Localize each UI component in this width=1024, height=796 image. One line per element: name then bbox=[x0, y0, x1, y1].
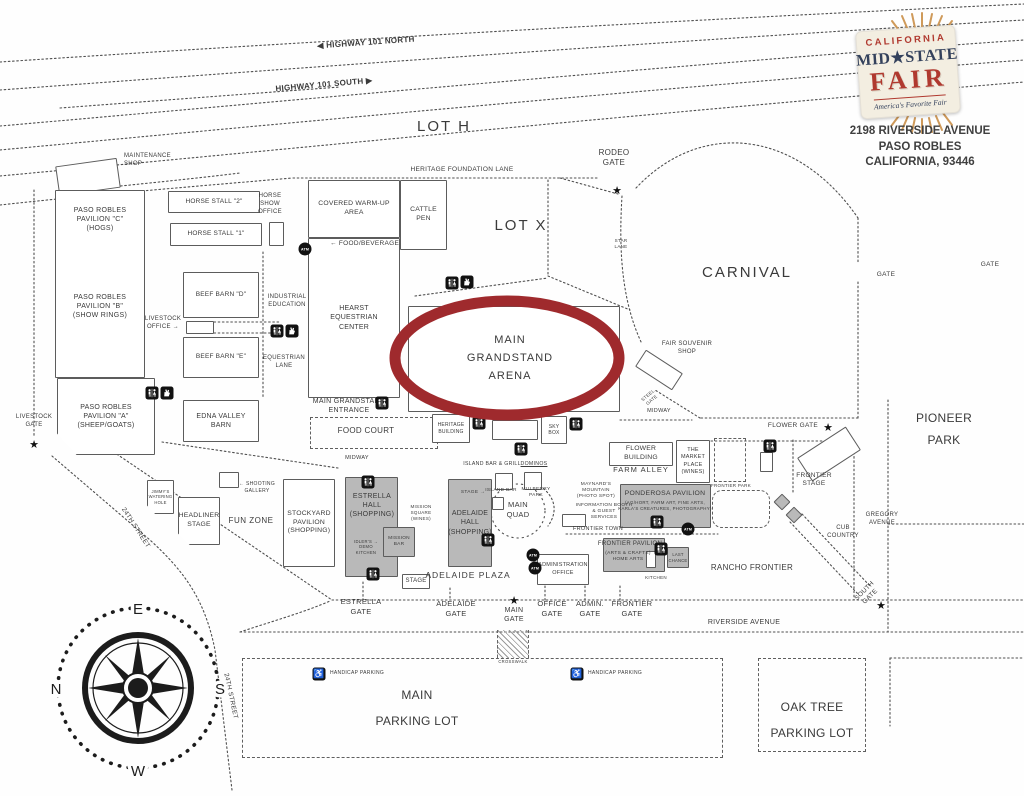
main-parking-lot-label: MAIN PARKING LOT bbox=[375, 682, 458, 735]
atm-ponderosa: ATM bbox=[682, 523, 695, 536]
headliner-stage: HEADLINER STAGE bbox=[178, 497, 220, 545]
estrella-stage-label: STAGE bbox=[406, 578, 427, 586]
midway-west-label: MIDWAY bbox=[345, 455, 369, 462]
carnival: CARNIVAL bbox=[702, 263, 792, 283]
frontier-pavilion-label: FRONTIER PAVILION bbox=[598, 541, 662, 549]
restroom-frontier-pavilion-icon bbox=[655, 543, 668, 556]
fairgrounds-map: PASO ROBLES PAVILION "A" (SHEEP/GOATS)HO… bbox=[0, 0, 1024, 796]
maynards-mountain-label: MAYNARD'S MOUNTAIN (PHOTO SPOT) bbox=[577, 482, 615, 501]
flower-building: FLOWER BUILDING bbox=[609, 442, 673, 466]
adelaide-plaza-label: ADELAIDE PLAZA bbox=[425, 570, 510, 581]
admin-gate-label: ADMIN. GATE bbox=[576, 599, 604, 619]
headliner-stage-label: HEADLINER STAGE bbox=[179, 512, 220, 530]
beef-barn-d: BEEF BARN "D" bbox=[183, 272, 259, 318]
riverside-curve bbox=[240, 601, 330, 632]
market-place: THE MARKET PLACE (WINES) bbox=[676, 440, 710, 483]
hearst-equestrian-center-label: HEARST EQUESTRIAN CENTER bbox=[330, 304, 378, 331]
frontier-gate-label: FRONTIER GATE bbox=[612, 599, 653, 619]
maintenance-shop-label: MAINTENANCE SHOP bbox=[124, 153, 171, 169]
compass-west-label: W bbox=[131, 763, 146, 780]
carnival-top bbox=[636, 143, 858, 218]
office-gate-label: OFFICE GATE bbox=[537, 599, 566, 619]
cattle-pen: CATTLE PEN bbox=[400, 180, 447, 250]
horse-stall-2: HORSE STALL "2" bbox=[168, 191, 260, 213]
mission-bar-label: MISSION BAR bbox=[388, 536, 410, 548]
restroom-frontier-park-icon bbox=[764, 440, 777, 453]
mulberry-park-label: MULBERRY PARK bbox=[522, 487, 551, 499]
main-grandstand-arena-label: MAIN GRANDSTAND ARENA bbox=[467, 331, 553, 385]
gate-east-label: GATE bbox=[981, 261, 999, 269]
quad-stage bbox=[492, 497, 504, 510]
mission-bar: MISSION BAR bbox=[383, 527, 415, 557]
address-line-3: CALIFORNIA, 93446 bbox=[830, 155, 1010, 171]
restroom-adelaide-icon bbox=[482, 534, 495, 547]
carnival-left bbox=[621, 196, 642, 344]
frontier-diamond-1 bbox=[774, 494, 791, 511]
concession-lot-x-icon bbox=[461, 276, 474, 289]
address-line-1: 2198 RIVERSIDE AVENUE bbox=[830, 124, 1010, 140]
rodeo-gate-star: ★ bbox=[612, 181, 622, 199]
concession-pavilion-a-icon bbox=[161, 387, 174, 400]
kitchen-label: KITCHEN bbox=[645, 575, 667, 581]
fair-address: 2198 RIVERSIDE AVENUE PASO ROBLES CALIFO… bbox=[830, 124, 1010, 171]
highway-101-north: ◀ HIGHWAY 101 NORTH bbox=[317, 35, 415, 52]
horse-stall-1-label: HORSE STALL "1" bbox=[187, 230, 244, 238]
restroom-grandstand-entrance-icon bbox=[376, 397, 389, 410]
frontier-town-label: FRONTIER TOWN bbox=[573, 526, 623, 533]
riverside-avenue-label: RIVERSIDE AVENUE bbox=[708, 618, 780, 627]
logo-fair: FAIR bbox=[869, 62, 949, 97]
horse-stall-2-label: HORSE STALL "2" bbox=[185, 198, 242, 206]
south-gate-star: ★ bbox=[876, 596, 886, 614]
frontier-park-area-1 bbox=[714, 438, 746, 482]
administration-office: ADMINISTRATION OFFICE bbox=[537, 554, 589, 585]
island-bar-grill-label: ISLAND BAR & GRILL bbox=[463, 461, 521, 468]
concession-industrial-ed-icon bbox=[286, 325, 299, 338]
edna-valley-barn: EDNA VALLEY BARN bbox=[183, 400, 259, 442]
atm-admin-1-icon: ATM bbox=[527, 549, 540, 562]
pavilion-b-label: PASO ROBLES PAVILION "B" (SHOW RINGS) bbox=[73, 293, 127, 320]
atm-admin-2: ATM bbox=[529, 562, 542, 575]
cub-country-label: CUB COUNTRY bbox=[827, 525, 859, 541]
flower-building-area-label: FARM ALLEY bbox=[613, 465, 669, 475]
industrial-education-label: INDUSTRIAL EDUCATION bbox=[268, 294, 307, 310]
atm-admin-2-icon: ATM bbox=[529, 562, 542, 575]
gate-carnival-label: GATE bbox=[877, 271, 895, 279]
idlers-demo-kitchen-label: IDLER'S → DEMO KITCHEN bbox=[354, 539, 378, 555]
fair-souvenir-shop-label: FAIR SOUVENIR SHOP bbox=[662, 341, 712, 357]
restroom-sky-box-icon bbox=[570, 418, 583, 431]
food-row-building bbox=[492, 420, 538, 440]
equestrian-lane-label: EQUESTRIAN LANE bbox=[263, 355, 305, 371]
hearst-equestrian-center: HEARST EQUESTRIAN CENTER bbox=[308, 238, 400, 398]
lot-h: LOT H bbox=[417, 117, 471, 137]
handicap-parking-label-1: HANDICAP PARKING bbox=[330, 670, 384, 677]
last-chance-label: LAST CHANCE bbox=[669, 552, 688, 563]
livestock-gate-label: LIVESTOCK GATE bbox=[16, 414, 52, 430]
stockyard-pavilion-label: STOCKYARD PAVILION (SHOPPING) bbox=[287, 510, 330, 536]
jimmys-watering-hole: JIMMY'S WATERING HOLE bbox=[147, 480, 174, 514]
horse-show-office bbox=[269, 222, 284, 246]
lot-x-diag bbox=[548, 276, 630, 310]
food-beverage-label: ← FOOD/BEVERAGE bbox=[330, 240, 399, 248]
restroom-pavilion-a-icon bbox=[146, 387, 159, 400]
flower-building-label: FLOWER BUILDING bbox=[610, 445, 672, 463]
restroom-industrial-ed-icon bbox=[271, 325, 284, 338]
rodeo-gate-label: RODEO GATE bbox=[599, 148, 630, 169]
mission-square-label: MISSION SQUARE (WINES) bbox=[410, 504, 431, 522]
market-place-label: THE MARKET PLACE (WINES) bbox=[681, 447, 705, 476]
paso-robles-pavilion-a-label: PASO ROBLES PAVILION "A" (SHEEP/GOATS) bbox=[78, 403, 135, 430]
main-gate-star-icon: ★ bbox=[509, 595, 519, 607]
livestock-gate-star-icon: ★ bbox=[29, 439, 39, 451]
compass-east-label: E bbox=[133, 601, 143, 618]
compass-rose-icon: E N S W bbox=[48, 600, 228, 780]
dominos-label: DOMINOS bbox=[521, 461, 548, 468]
covered-warmup-area: COVERED WARM-UP AREA bbox=[308, 180, 400, 238]
ponderosa-pavilion-label: PONDEROSA PAVILION bbox=[625, 490, 706, 499]
livestock-gate-star: ★ bbox=[29, 435, 39, 453]
handicap-parking-label-2: HANDICAP PARKING bbox=[588, 670, 642, 677]
stockyard-pavilion: STOCKYARD PAVILION (SHOPPING) bbox=[283, 479, 335, 567]
frontier-park-area-2 bbox=[712, 490, 770, 528]
lot-x: LOT X bbox=[494, 216, 547, 236]
paso-robles-pavilion-a: PASO ROBLES PAVILION "A" (SHEEP/GOATS) bbox=[57, 378, 155, 455]
atm-ponderosa-icon: ATM bbox=[682, 523, 695, 536]
livestock-office-label: LIVESTOCK OFFICE → bbox=[145, 316, 181, 332]
last-chance: LAST CHANCE bbox=[667, 547, 689, 568]
restroom-food-court-2-icon bbox=[515, 443, 528, 456]
horse-stall-1: HORSE STALL "1" bbox=[170, 223, 262, 246]
fair-logo-badge: CALIFORNIA MID★STATE FAIR America's Favo… bbox=[855, 25, 961, 120]
heritage-foundation-lane-label: HERITAGE FOUNDATION LANE bbox=[410, 166, 513, 174]
rodeo-gate-star-icon: ★ bbox=[612, 185, 622, 197]
information-booth-label: INFORMATION BOOTH & GUEST SERVICES bbox=[576, 503, 633, 522]
sky-box-label: SKY BOX bbox=[548, 424, 559, 437]
flower-gate-label: FLOWER GATE bbox=[768, 422, 818, 430]
pavilion-c-label: PASO ROBLES PAVILION "C" (HOGS) bbox=[74, 206, 127, 233]
fair-logo: CALIFORNIA MID★STATE FAIR America's Favo… bbox=[845, 12, 995, 172]
covered-warmup-area-label: COVERED WARM-UP AREA bbox=[318, 200, 389, 218]
arena-access bbox=[415, 278, 548, 296]
shooting-gallery-building bbox=[219, 472, 239, 488]
restroom-ponderosa-icon bbox=[651, 516, 664, 529]
atm-food-beverage: ATM bbox=[299, 243, 312, 256]
frontier-park-building bbox=[760, 452, 773, 472]
beef-barn-e-label: BEEF BARN "E" bbox=[196, 353, 246, 361]
highway-101-south: HIGHWAY 101 SOUTH ▶ bbox=[275, 76, 373, 95]
address-line-2: PASO ROBLES bbox=[830, 140, 1010, 156]
estrella-gate-label: ESTRELLA GATE bbox=[341, 597, 382, 617]
food-court-label: FOOD COURT bbox=[338, 426, 395, 436]
shooting-gallery-label: ← SHOOTING GALLERY bbox=[239, 481, 275, 494]
crosswalk-label: CROSSWALK bbox=[498, 659, 527, 664]
administration-office-label: ADMINISTRATION OFFICE bbox=[538, 562, 587, 576]
logo-tagline: America's Favorite Fair bbox=[873, 94, 947, 111]
rodeo-approach bbox=[560, 178, 618, 194]
heritage-building-label: HERITAGE BUILDING bbox=[438, 422, 465, 435]
restroom-food-court-1-icon bbox=[473, 417, 486, 430]
estrella-hall-label: ESTRELLA HALL (SHOPPING) bbox=[350, 492, 395, 519]
oak-tree-parking-lot-label: OAK TREE PARKING LOT bbox=[770, 694, 853, 747]
south-gate-star-icon: ★ bbox=[876, 600, 886, 612]
livestock-office bbox=[186, 321, 214, 334]
pioneer-park: PIONEER PARK bbox=[916, 408, 972, 451]
beef-barn-d-label: BEEF BARN "D" bbox=[196, 291, 247, 299]
midway-east-label: MIDWAY bbox=[647, 408, 671, 415]
jimmys-watering-hole-label: JIMMY'S WATERING HOLE bbox=[149, 489, 173, 505]
compass-north-label: N bbox=[51, 681, 62, 698]
handicap-parking-2-icon: ♿ bbox=[571, 668, 584, 681]
restroom-estrella-south-icon bbox=[367, 568, 380, 581]
frontier-stage-label: FRONTIER STAGE bbox=[796, 472, 832, 489]
sky-box: SKY BOX bbox=[541, 416, 567, 444]
heritage-building: HERITAGE BUILDING bbox=[432, 414, 470, 443]
flower-gate-star-icon: ★ bbox=[823, 422, 833, 434]
atm-admin-1: ATM bbox=[527, 549, 540, 562]
main-quad-label: MAIN QUAD bbox=[507, 500, 530, 520]
island-bar-label: ISLAND BAR bbox=[485, 488, 517, 494]
cattle-pen-label: CATTLE PEN bbox=[410, 206, 437, 224]
gregory-avenue-label: GREGORY AVENUE bbox=[866, 512, 899, 528]
handicap-parking-1-icon: ♿ bbox=[313, 668, 326, 681]
crosswalk-hatch bbox=[497, 630, 529, 658]
horse-show-office-label: HORSE SHOW OFFICE bbox=[258, 193, 282, 216]
flower-gate-star: ★ bbox=[823, 418, 833, 436]
frontier-diamond-2 bbox=[786, 507, 803, 524]
atm-food-beverage-icon: ATM bbox=[299, 243, 312, 256]
restroom-lot-x-icon bbox=[446, 277, 459, 290]
fun-zone-label: FUN ZONE bbox=[229, 516, 274, 526]
quad-stage-label: STAGE → bbox=[461, 490, 485, 496]
edna-valley-barn-label: EDNA VALLEY BARN bbox=[196, 412, 245, 430]
24th-street-upper-label: 24TH STREET bbox=[119, 506, 151, 550]
rancho-frontier-label: RANCHO FRONTIER bbox=[711, 563, 793, 573]
frontier-park-label: FRONTIER PARK bbox=[711, 483, 751, 489]
beef-barn-e: BEEF BARN "E" bbox=[183, 337, 259, 378]
star-lane-label: STAR LANE bbox=[615, 238, 628, 250]
main-grandstand-entrance-label: MAIN GRANDSTAND ENTRANCE bbox=[313, 397, 385, 415]
steel-gate-label: STEEL GATE bbox=[640, 388, 660, 407]
restroom-estrella-north-icon bbox=[362, 476, 375, 489]
main-gate-star: ★ bbox=[509, 591, 519, 609]
24th-street-lower-label: 24TH STREET bbox=[221, 673, 239, 720]
frontier-pavilion-sub: (ARTS & CRAFTS) HOME ARTS bbox=[605, 551, 650, 563]
adelaide-gate-label: ADELAIDE GATE bbox=[436, 599, 476, 619]
